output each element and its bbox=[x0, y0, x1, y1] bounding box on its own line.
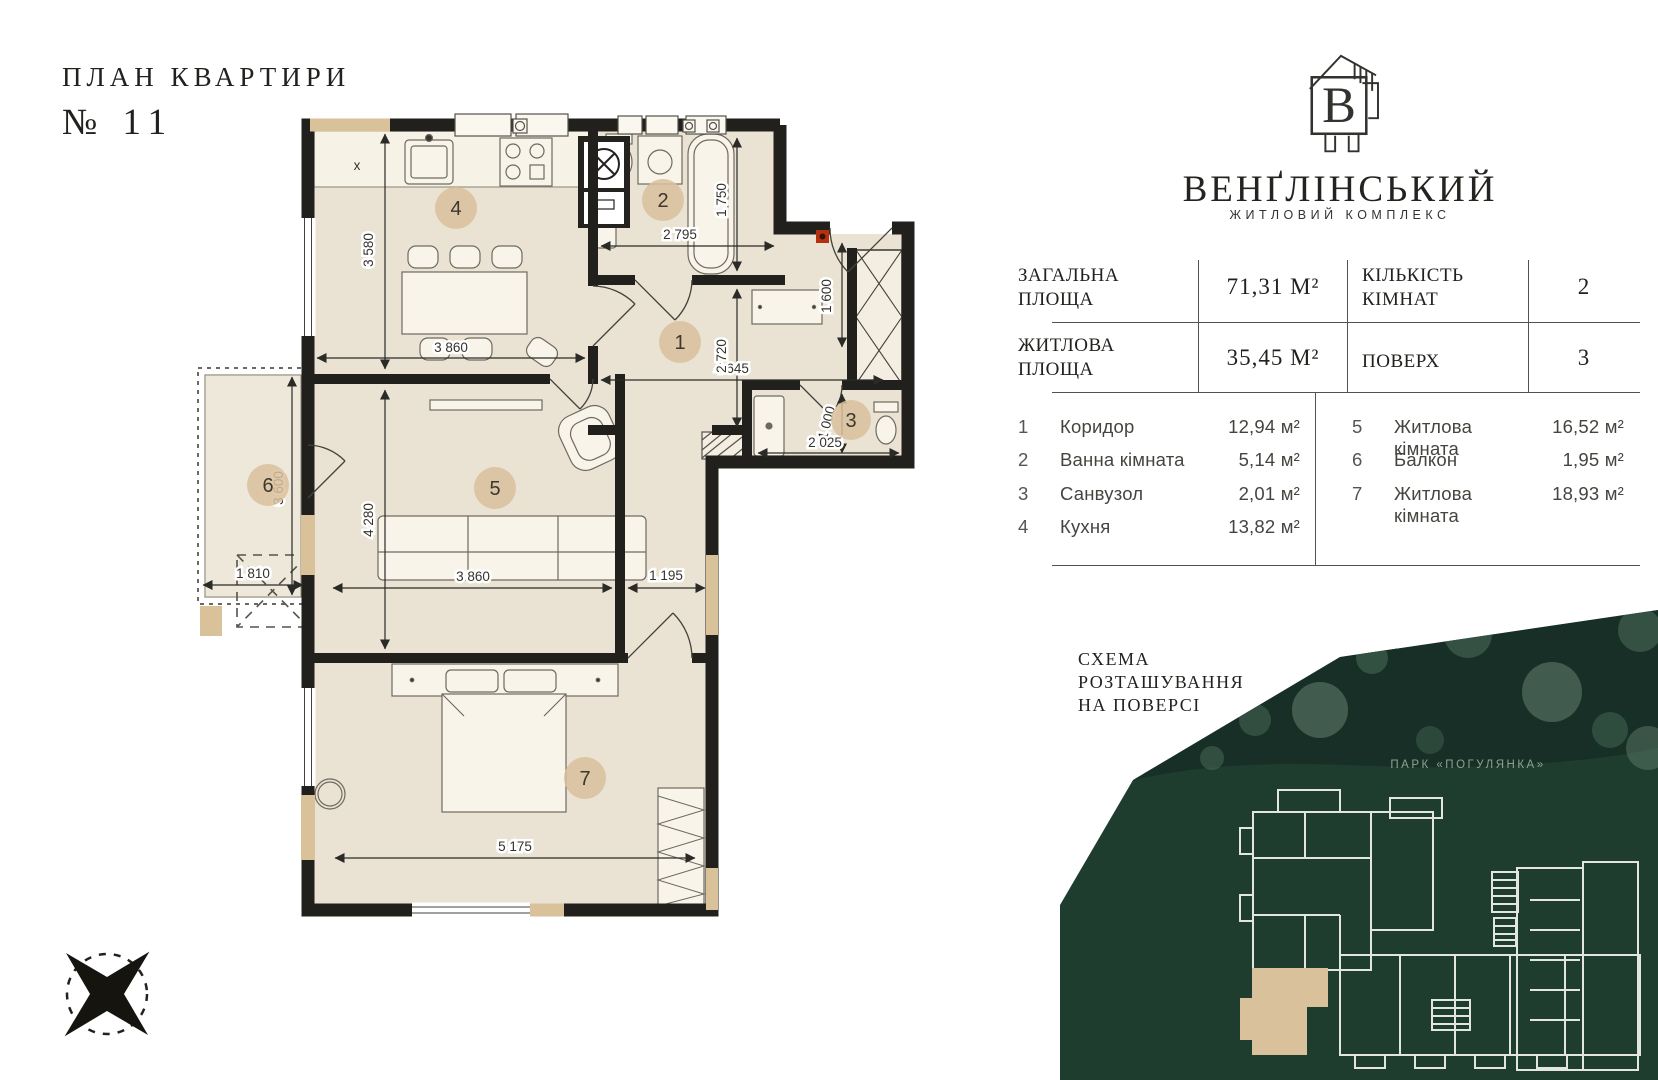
storage-hatch bbox=[702, 432, 746, 459]
summary-value-rooms: 2 bbox=[1528, 274, 1640, 300]
room-name: Ванна кімната bbox=[1060, 449, 1208, 471]
balcony-pier bbox=[200, 606, 222, 636]
vent-shaft bbox=[578, 136, 630, 228]
brand-logo-letter: B bbox=[1322, 77, 1356, 133]
floor-plan-drawing: 3 580 3 860 2 795 1 750 4 645 2 720 1 60… bbox=[180, 100, 920, 930]
summary-value-floor: 3 bbox=[1528, 345, 1640, 371]
summary-value-living-area: 35,45 М² bbox=[1198, 345, 1348, 371]
table-rule-bottom bbox=[1052, 392, 1640, 393]
x-mark: x bbox=[354, 158, 361, 173]
room-number-balcony: 6 bbox=[262, 475, 273, 497]
room-number-wc: 3 bbox=[845, 410, 856, 432]
room-area: 13,82 м² bbox=[1208, 516, 1300, 538]
room-area: 1,95 м² bbox=[1532, 449, 1624, 471]
compass-rose bbox=[45, 930, 170, 1055]
room-num: 5 bbox=[1352, 416, 1394, 438]
room-name: Балкон bbox=[1394, 449, 1532, 471]
summary-label-total-area: ЗАГАЛЬНА ПЛОЩА bbox=[1018, 264, 1163, 312]
room-num: 7 bbox=[1352, 483, 1394, 505]
list-item: 6 Балкон 1,95 м² bbox=[1352, 449, 1624, 471]
room-area: 2,01 м² bbox=[1208, 483, 1300, 505]
dim-label: 5 175 bbox=[498, 839, 532, 854]
dim-label: 2 025 bbox=[808, 435, 842, 450]
room-number-bedroom: 7 bbox=[579, 768, 590, 790]
dim-label: 1 750 bbox=[714, 183, 729, 217]
brand-name: ВЕНҐЛІНСЬКИЙ bbox=[1140, 168, 1540, 211]
table-divider-1 bbox=[1198, 260, 1199, 392]
brand-tagline: ЖИТЛОВИЙ КОМПЛЕКС bbox=[1140, 208, 1540, 222]
dim-label: 3 860 bbox=[456, 569, 490, 584]
room-num: 3 bbox=[1018, 483, 1060, 505]
room-number-hall: 1 bbox=[674, 332, 685, 354]
summary-value-total-area: 71,31 М² bbox=[1198, 274, 1348, 300]
room-name: Санвузол bbox=[1060, 483, 1208, 505]
room-area: 12,94 м² bbox=[1208, 416, 1300, 438]
entry-closet bbox=[856, 250, 902, 384]
summary-label-rooms: КІЛЬКІСТЬ КІМНАТ bbox=[1362, 264, 1512, 312]
list-item: 4 Кухня 13,82 м² bbox=[1018, 516, 1300, 538]
utility-box bbox=[816, 230, 829, 243]
room-name: Житлова кімната bbox=[1394, 483, 1532, 527]
brand-logo-icon: B bbox=[1296, 50, 1384, 162]
list-item: 2 Ванна кімната 5,14 м² bbox=[1018, 449, 1300, 471]
room-number-kitchen: 4 bbox=[450, 198, 461, 220]
dim-label: 4 280 bbox=[361, 503, 376, 537]
list-divider bbox=[1315, 392, 1316, 565]
list-item: 7 Житлова кімната 18,93 м² bbox=[1352, 483, 1624, 527]
room-number-bath: 2 bbox=[657, 190, 668, 212]
table-divider-2 bbox=[1347, 260, 1348, 392]
room-area: 16,52 м² bbox=[1532, 416, 1624, 438]
room-num: 1 bbox=[1018, 416, 1060, 438]
summary-label-living-area: ЖИТЛОВА ПЛОЩА bbox=[1018, 334, 1163, 382]
dim-label: 1 195 bbox=[649, 568, 683, 583]
room-num: 6 bbox=[1352, 449, 1394, 471]
room-area: 5,14 м² bbox=[1208, 449, 1300, 471]
dim-label: 3 580 bbox=[361, 233, 376, 267]
map-forest bbox=[1069, 608, 1658, 780]
summary-table: ЗАГАЛЬНА ПЛОЩА 71,31 М² КІЛЬКІСТЬ КІМНАТ… bbox=[1000, 252, 1640, 572]
room-name: Коридор bbox=[1060, 416, 1208, 438]
dim-label: 1 810 bbox=[236, 566, 270, 581]
list-rule-bottom bbox=[1052, 565, 1640, 566]
park-label: ПАРК «ПОГУЛЯНКА» bbox=[1390, 759, 1545, 771]
table-rule-mid bbox=[1052, 322, 1640, 323]
room-num: 2 bbox=[1018, 449, 1060, 471]
dim-label: 1 600 bbox=[819, 279, 834, 313]
floor-plan-sheet: ПЛАН КВАРТИРИ № 11 bbox=[0, 0, 1658, 1080]
room-num: 4 bbox=[1018, 516, 1060, 538]
list-item: 3 Санвузол 2,01 м² bbox=[1018, 483, 1300, 505]
room-area: 18,93 м² bbox=[1532, 483, 1624, 505]
room-number-living: 5 bbox=[489, 478, 500, 500]
page-title: ПЛАН КВАРТИРИ bbox=[62, 62, 350, 93]
dim-label: 3 860 bbox=[434, 340, 468, 355]
table-divider-3 bbox=[1528, 260, 1529, 392]
highlighted-unit-balcony bbox=[1240, 998, 1253, 1040]
dim-label: 2 795 bbox=[663, 227, 697, 242]
summary-label-floor: ПОВЕРХ bbox=[1362, 350, 1512, 374]
location-map: ПАРК «ПОГУЛЯНКА» bbox=[1000, 600, 1658, 1080]
list-item: 1 Коридор 12,94 м² bbox=[1018, 416, 1300, 438]
room-name: Кухня bbox=[1060, 516, 1208, 538]
dim-label: 2 720 bbox=[714, 339, 729, 373]
compass-star bbox=[45, 930, 170, 1055]
